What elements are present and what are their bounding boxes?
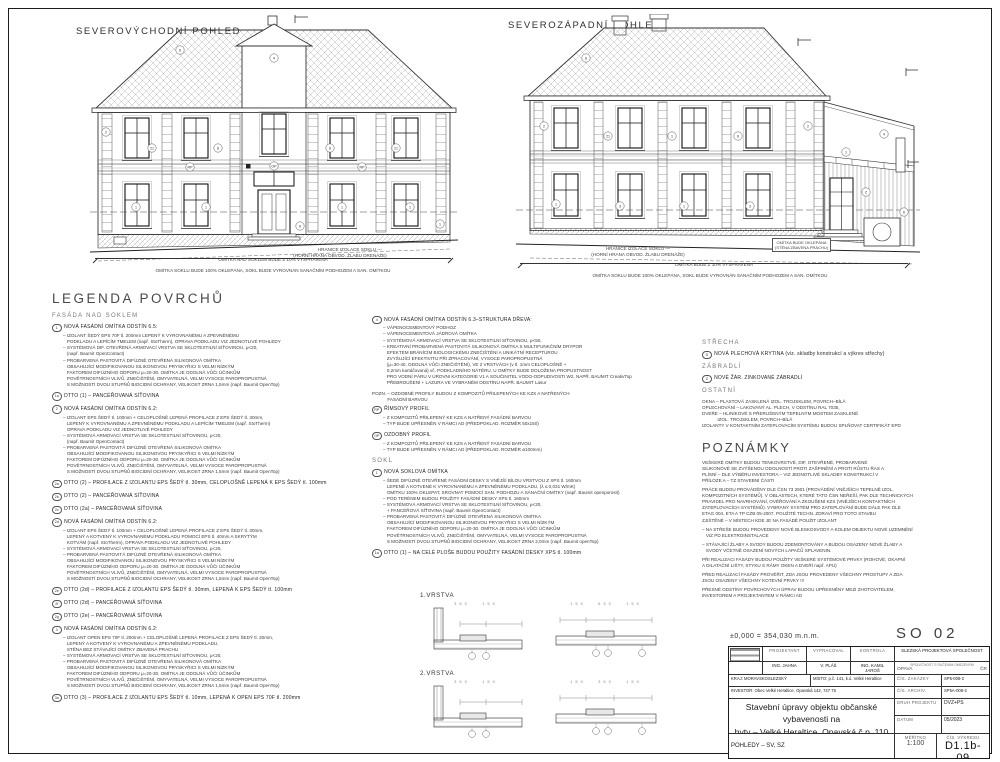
detail-2b: 150 350 150	[550, 679, 662, 738]
svg-text:6: 6	[299, 224, 301, 228]
nw-boundary-note2: (HORNÍ HRANA OBVOD. ŽLABU DRENÁŽE)	[540, 252, 736, 257]
title-block: PROJEKTANT VYPRACOVAL KONTROLA SLEZSKÁ P…	[728, 646, 990, 759]
item-body: – IZOLANT OPEN EPS 70F tl. 200mm + CELOP…	[52, 635, 370, 690]
druh-value: DVZ+PS	[942, 699, 989, 715]
item-number-circle: 2g	[52, 613, 62, 621]
item-number-circle: 3	[52, 626, 62, 634]
legend-item: SNOVÁ PLECHOVÁ KRYTINA (viz. skladby kon…	[702, 351, 988, 359]
svg-text:21: 21	[150, 146, 154, 150]
svg-text:21: 21	[394, 146, 398, 150]
item-label: NOVÁ FASÁDNÍ OMÍTKA ODSTÍN 6.2:	[64, 405, 157, 412]
svg-text:1: 1	[555, 202, 557, 206]
svg-text:3: 3	[619, 204, 621, 208]
company-name: SLEZSKÁ PROJEKTOVÁ SPOLEČNOST	[897, 648, 987, 653]
item-body: – IZOLANT EPS ŠEDÝ tl. 100mm + CELOPLOŠN…	[52, 415, 370, 476]
legend-item: 4NOVÁ FASÁDNÍ OMÍTKA ODSTÍN 6.3–STRUKTUR…	[372, 316, 694, 386]
item-label: DTTO (1) – PANCÉŘOVANÁ SÍŤOVINA	[64, 392, 159, 399]
svg-text:1: 1	[671, 134, 673, 138]
legend-note: PŘESNÉ ODSTÍNY POVRCHOVÝCH ÚPRAV BUDOU U…	[702, 587, 988, 599]
layer-details: 1.VRSTVA 350 150 150 630 150 2.VRSTVA 35…	[420, 592, 662, 738]
legend-section-heading: ZÁBRADLÍ	[702, 364, 988, 372]
zakazka-value: SP5-008-2	[942, 675, 989, 686]
item-label: DTTO (2e) – PANCÉŘOVANÁ SÍŤOVINA	[64, 613, 162, 620]
legend-item: 3aDTTO (3) – PROFILACE Z IZOLANTU EPS ŠE…	[52, 694, 370, 702]
legend-note: PŘED REALIZACÍ FASÁDY PROVĚŘIT, ZDA JSOU…	[702, 572, 988, 584]
company-block: SLEZSKÁ PROJEKTOVÁ SPOLEČNOST	[895, 647, 989, 661]
notes-heading: POZNÁMKY	[702, 439, 988, 456]
svg-text:4: 4	[883, 132, 885, 136]
item-label: NOVÁ FASÁDNÍ OMÍTKA ODSTÍN 6.5:	[64, 324, 157, 331]
svg-text:3: 3	[749, 204, 751, 208]
item-number-circle: 1a	[372, 549, 382, 557]
legend-item: 3NOVÁ FASÁDNÍ OMÍTKA ODSTÍN 6.2:– IZOLAN…	[52, 626, 370, 690]
datum-label: DATUM	[895, 716, 942, 733]
item-label: NOVÁ FASÁDNÍ OMÍTKA ODSTÍN 6.3–STRUKTURA…	[384, 316, 532, 323]
svg-text:2: 2	[105, 130, 107, 134]
detail-1b-drawing	[550, 606, 662, 660]
level-datum-note: ±0,000 = 354,030 m.n.m.	[730, 633, 819, 640]
legend-note: – STÁVAJÍCÍ ŽLABY A SVODY BUDOU ZDEMONTO…	[702, 542, 988, 554]
projektant-name: ING. JAHNA	[763, 662, 807, 674]
svg-text:1: 1	[205, 205, 207, 209]
druh-label: DRUH PROJEKTU	[895, 699, 942, 715]
item-label: NOVÁ FASÁDNÍ OMÍTKA ODSTÍN 6.2:	[64, 626, 157, 633]
legend-item: 2fDTTO (2d) – PANCÉŘOVANÁ SÍŤOVINA	[52, 600, 370, 608]
investor-cell: INVESTOR: Obec Velké Heraltice, Opavská …	[729, 687, 895, 698]
drawing-number: D1.1b-09	[939, 740, 987, 758]
item-label: ŘÍMSOVÝ PROFIL	[384, 406, 429, 413]
archiv-value: SP5A-008-2	[942, 687, 989, 698]
legend-title: LEGENDA POVRCHŮ	[52, 291, 225, 306]
item-number-circle: S	[702, 351, 712, 359]
elevation-northeast-drawing: S42218821RPRP1111OP61	[90, 14, 458, 266]
item-number-circle: 3a	[52, 694, 62, 702]
company-logo	[729, 647, 763, 661]
svg-text:4: 4	[273, 56, 275, 60]
svg-text:RP: RP	[188, 165, 194, 169]
item-label: OZDOBNÝ PROFIL	[384, 432, 431, 439]
item-number-circle: 1a	[52, 392, 62, 400]
projektant-header: PROJEKTANT	[763, 647, 807, 661]
item-number-circle: 1	[52, 324, 62, 332]
legend-section-heading: OSTATNÍ	[702, 388, 988, 396]
nw-dimension-line	[520, 263, 908, 264]
svg-text:21: 21	[606, 134, 610, 138]
legend-item: 2cDTTO (2a) – PANCÉŘOVANÁ SÍŤOVINA	[52, 506, 370, 514]
legend-item: 2aDTTO (2) – PROFILACE Z IZOLANTU EPS ŠE…	[52, 480, 370, 488]
svg-text:2: 2	[807, 124, 809, 128]
item-body: – Z KOMPOZITŮ PŘILEPENÝ KE KZS A NATŘENÝ…	[372, 415, 694, 427]
legend-item: OPOZDOBNÝ PROFIL– Z KOMPOZITŮ PŘILEPENÝ …	[372, 432, 694, 454]
legend-item: 1aDTTO (1) – NA CELÉ PLOŠE BUDOU POUŽITY…	[372, 549, 694, 557]
project-title-line2: byty – Velké Heraltice, Opavská č.p. 110	[731, 725, 892, 733]
legend-note: – NA STŘEŠE BUDOU PROVEDENY NOVÉ BLESKOS…	[702, 527, 988, 539]
legend-section-heading: STŘECHA	[702, 340, 988, 348]
detail-1b: 150 630 150	[550, 601, 662, 660]
legend-note: PŘI REALIZACI FASÁDY BUDOU POUŽITY VEŠKE…	[702, 557, 988, 569]
item-label: NOVÁ FASÁDNÍ OMÍTKA ODSTÍN 6.2:	[64, 518, 157, 525]
item-number-circle: 4	[372, 316, 382, 324]
building-object-number: SO 02	[896, 625, 959, 642]
item-label: NOVÉ ŽÁR. ZINKOVANÉ ZÁBRADLÍ	[714, 375, 802, 382]
svg-text:8: 8	[329, 146, 331, 150]
kontrola-header: KONTROLA	[851, 647, 895, 661]
detail-1a-drawing	[420, 606, 532, 660]
legend-column-3: STŘECHASNOVÁ PLECHOVÁ KRYTINA (viz. skla…	[702, 336, 988, 602]
item-label: DTTO (2) – PANCÉŘOVANÁ SÍŤOVINA	[64, 493, 159, 500]
legend-section-heading: FASÁDA NAD SOKLEM	[52, 313, 370, 321]
item-body: – IZOLANT ŠEDÝ EPS 70F tl. 200mm LEPENÝ …	[52, 333, 370, 388]
drawing-sheet: SEVEROVÝCHODNÍ POHLED SEVEROZÁPADNÍ POHL…	[0, 0, 1000, 762]
item-label: DTTO (2a) – PANCÉŘOVANÁ SÍŤOVINA	[64, 506, 162, 513]
ne-dimension-line	[95, 258, 451, 259]
pohledy-cell: POHLEDY – SV, SZ	[729, 734, 895, 758]
item-number-circle: 2f	[52, 600, 62, 608]
company-country: ČR	[980, 667, 987, 672]
vypracoval-name: V. PLÁŠ	[807, 662, 851, 674]
legend-note: PRÁCE BUDOU PROVÁDĚNY DLE ČSN 73 2901 (P…	[702, 487, 988, 523]
item-body: – VÁPENOCEMENTOVÝ PODHOZ – VÁPENOCEMENTO…	[372, 325, 694, 386]
vypracoval-header: VYPRACOVAL	[807, 647, 851, 661]
detail-2a: 350 150	[420, 679, 532, 738]
item-number-circle: 2b	[52, 493, 62, 501]
legend-item: 2gDTTO (2e) – PANCÉŘOVANÁ SÍŤOVINA	[52, 613, 370, 621]
item-number-circle: 2d	[52, 518, 62, 526]
svg-text:RP: RP	[360, 165, 366, 169]
item-number-circle: 2a	[52, 480, 62, 488]
legend-item: 2NOVÁ FASÁDNÍ OMÍTKA ODSTÍN 6.2:– IZOLAN…	[52, 405, 370, 475]
legend-note: POZN. – OZDOBNÉ PROFILY BUDOU Z KOMPOZIT…	[372, 391, 694, 403]
legend-column-2: 4NOVÁ FASÁDNÍ OMÍTKA ODSTÍN 6.3–STRUKTUR…	[372, 316, 694, 562]
item-label: DTTO (1) – NA CELÉ PLOŠE BUDOU POUŽITY F…	[384, 549, 581, 556]
legend-column-1: FASÁDA NAD SOKLEM1NOVÁ FASÁDNÍ OMÍTKA OD…	[52, 309, 370, 707]
nw-box-note: OMÍTKA BUDE OKLEPÁNA (STĚNA ZBAVENA PRAC…	[772, 238, 831, 252]
kraj-cell: KRAJ: MORAVSKOSLEZSKÝ	[729, 675, 811, 686]
svg-text:1: 1	[341, 205, 343, 209]
item-label: DTTO (2) – PROFILACE Z IZOLANTU EPS ŠEDÝ…	[64, 480, 327, 487]
legend-item: 2dNOVÁ FASÁDNÍ OMÍTKA ODSTÍN 6.2:– IZOLA…	[52, 518, 370, 582]
legend-section-heading: SOKL	[372, 458, 694, 466]
svg-text:1: 1	[439, 222, 441, 226]
elevation-northwest-drawing: S22118213131Z46	[516, 14, 920, 266]
svg-text:1: 1	[845, 150, 847, 154]
legend-item: 2bDTTO (2) – PANCÉŘOVANÁ SÍŤOVINA	[52, 493, 370, 501]
item-body: – ŠEDÉ DIFÚZNĚ OTEVŘENÉ FASÁDNÍ DESKY S …	[372, 478, 694, 545]
svg-text:2: 2	[543, 124, 545, 128]
item-number-circle: OP	[372, 432, 382, 440]
item-label: NOVÁ SOKLOVÁ OMÍTKA	[384, 469, 448, 476]
svg-text:OP: OP	[271, 164, 277, 168]
legend-note: OKNA – PLASTOVÁ ZASKLENÁ IZOL. TROJSKLEM…	[702, 399, 988, 429]
meritko-value: 1:100	[897, 740, 934, 747]
legend-item: 1aDTTO (1) – PANCÉŘOVANÁ SÍŤOVINA	[52, 392, 370, 400]
legend-item: RPŘÍMSOVÝ PROFIL– Z KOMPOZITŮ PŘILEPENÝ …	[372, 406, 694, 428]
item-number-circle: 2	[52, 405, 62, 413]
misto-cell: MÍSTO: p.č. 141, k.ú. Velké Heraltice	[811, 675, 895, 686]
item-number-circle: 1	[372, 469, 382, 477]
item-label: NOVÁ PLECHOVÁ KRYTINA (viz. skladby kons…	[714, 351, 885, 358]
legend-item: 2eDTTO (2d) – PROFILACE Z IZOLANTU EPS Š…	[52, 587, 370, 595]
legend-note: VEŠKERÉ OMÍTKY BUDOU TENKOVRSTVÉ, DIF. O…	[702, 460, 988, 484]
svg-text:1: 1	[683, 204, 685, 208]
svg-text:1: 1	[135, 205, 137, 209]
layer2-label: 2.VRSTVA	[420, 670, 662, 677]
item-label: DTTO (2d) – PANCÉŘOVANÁ SÍŤOVINA	[64, 600, 162, 607]
svg-text:8: 8	[737, 134, 739, 138]
item-number-circle: Z	[702, 375, 712, 383]
company-city: OPAVA	[897, 667, 912, 672]
legend-item: 1NOVÁ FASÁDNÍ OMÍTKA ODSTÍN 6.5:– IZOLAN…	[52, 324, 370, 388]
archiv-label: ČÍS. ARCHIV.	[895, 687, 942, 698]
item-label: DTTO (3) – PROFILACE Z IZOLANTU EPS ŠEDÝ…	[64, 694, 300, 701]
ne-boundary-note: HRANICE IZOLACE SOKLU —	[268, 247, 432, 252]
item-number-circle: 2c	[52, 506, 62, 514]
zakazka-label: ČÍS. ZAKÁZKY	[895, 675, 942, 686]
detail-1a: 350 150	[420, 601, 532, 660]
datum-value: 05/2023	[942, 716, 989, 733]
project-title-line1: Stavební úpravy objektu občanské vybaven…	[731, 700, 892, 725]
item-number-circle: RP	[372, 406, 382, 414]
legend-item: 1NOVÁ SOKLOVÁ OMÍTKA– ŠEDÉ DIFÚZNĚ OTEVŘ…	[372, 469, 694, 545]
item-body: – Z KOMPOZITŮ PŘILEPENÝ KE KZS A NATŘENÝ…	[372, 441, 694, 453]
detail-2a-drawing	[420, 684, 532, 738]
detail-2b-drawing	[550, 684, 662, 738]
svg-text:6: 6	[903, 210, 905, 214]
item-number-circle: 2e	[52, 587, 62, 595]
nw-boundary-note: HRANICE IZOLACE SOKLU —	[556, 246, 720, 251]
svg-text:8: 8	[217, 146, 219, 150]
layer1-label: 1.VRSTVA	[420, 592, 662, 599]
kontrola-name: ING. KAMIL JAROŠ	[851, 662, 895, 674]
svg-text:1: 1	[409, 205, 411, 209]
item-label: DTTO (2d) – PROFILACE Z IZOLANTU EPS ŠED…	[64, 587, 292, 594]
item-body: – IZOLANT EPS ŠEDÝ tl. 100mm + CELOPLOŠN…	[52, 528, 370, 583]
nw-dim-note-bottom: OMÍTKA SOKLU BUDE 100% OKLEPÁNA, SOKL BU…	[508, 273, 912, 278]
ne-dim-note-bottom: OMÍTKA SOKLU BUDE 100% OKLEPÁNA, SOKL BU…	[78, 268, 468, 273]
legend-item: ZNOVÉ ŽÁR. ZINKOVANÉ ZÁBRADLÍ	[702, 375, 988, 383]
